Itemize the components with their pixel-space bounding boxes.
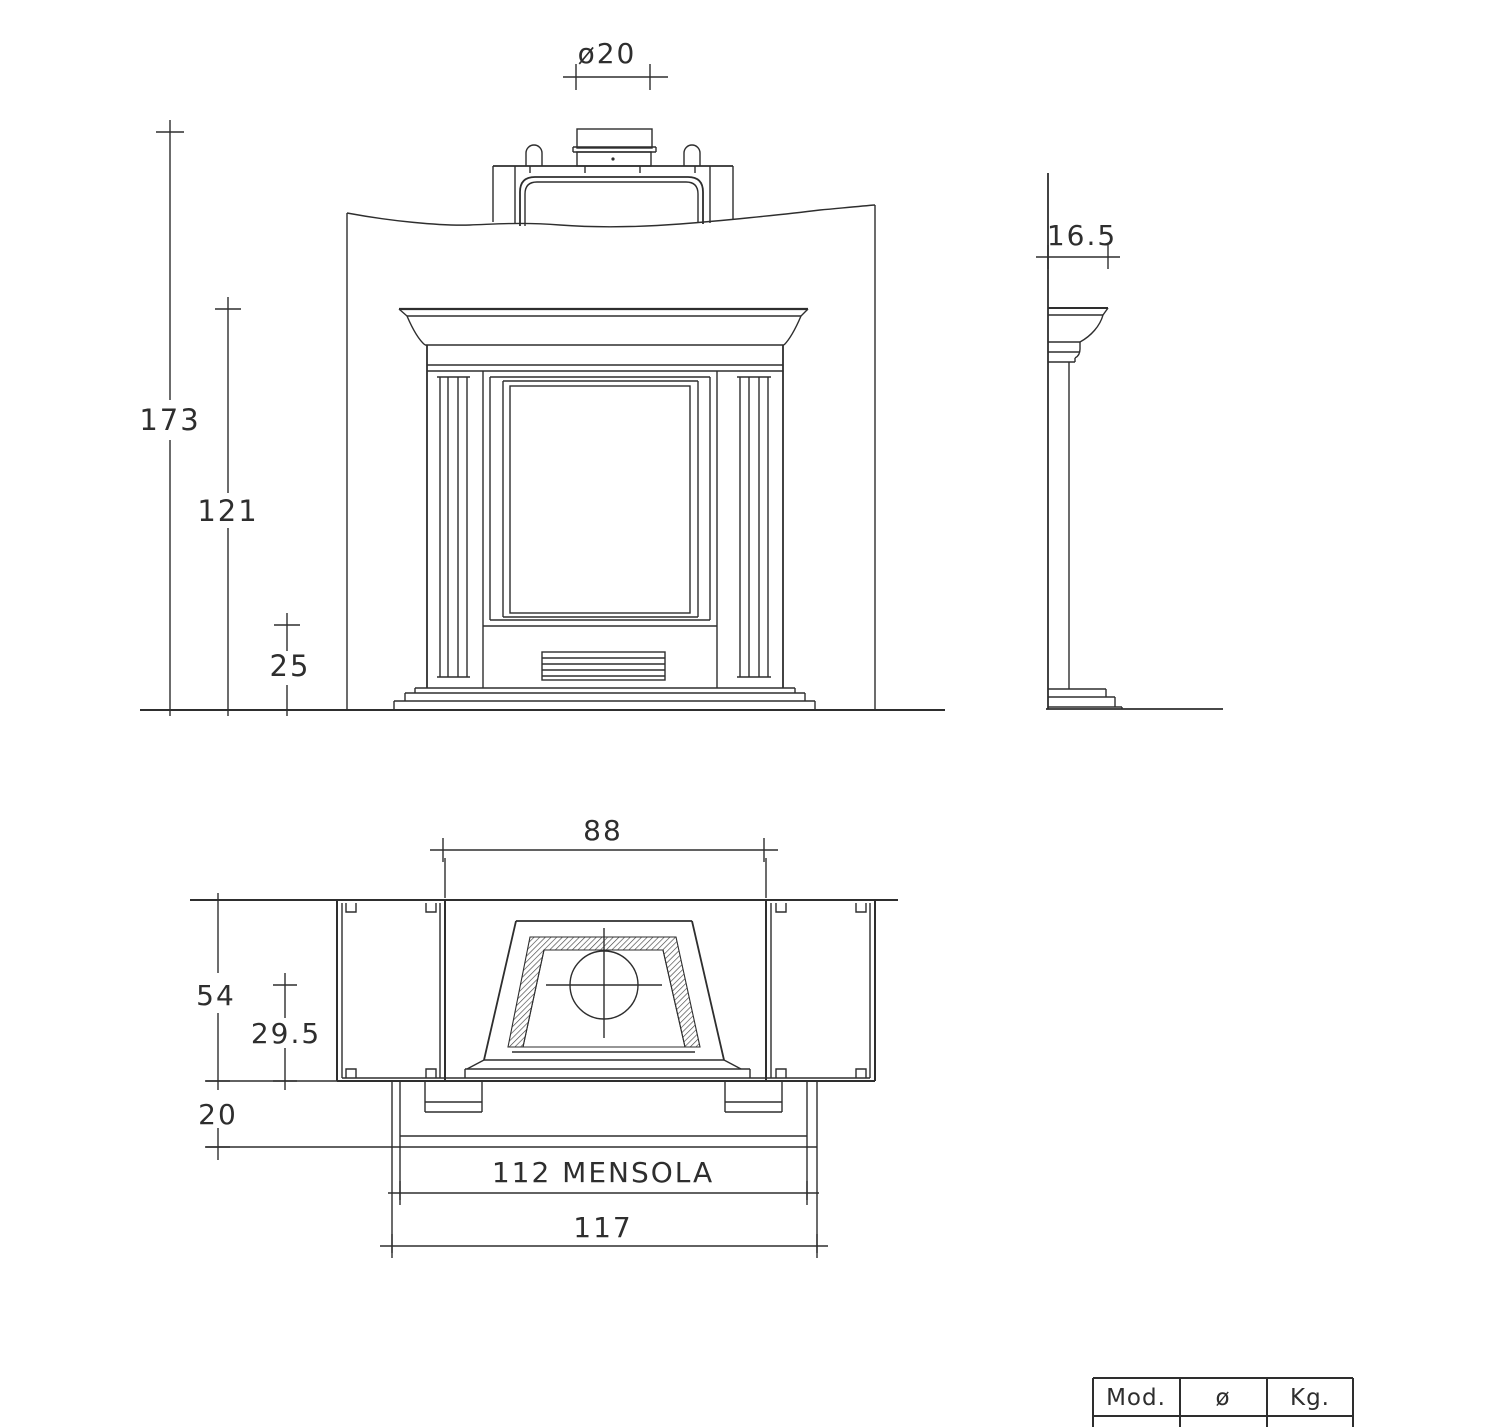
table-header-kg: Kg. (1290, 1385, 1330, 1411)
pilaster-left (427, 345, 483, 688)
dim-firebox-depth-label: 29.5 (251, 1017, 321, 1050)
plan-wall-left (337, 900, 445, 1081)
dim-side-depth-label: 16.5 (1047, 219, 1117, 252)
dim-wall-depth-label: 54 (196, 979, 236, 1012)
plan-front-bar (465, 1060, 750, 1078)
base-plinth (394, 688, 815, 710)
side-cornice-profile (1048, 308, 1108, 362)
handle-right-icon (684, 145, 700, 166)
dim-mantel-height-label: 121 (197, 494, 258, 528)
plan-mensola (392, 1081, 817, 1147)
pilaster-right (717, 345, 783, 688)
technical-drawing-canvas: ø20 173 121 25 (0, 0, 1500, 1427)
plan-foot-left (425, 1081, 482, 1112)
insert-casing (493, 166, 733, 224)
firebox-opening (483, 377, 717, 626)
dim-hearth-height-label: 25 (270, 649, 311, 683)
handle-left-icon (526, 145, 542, 166)
dim-flue-diameter-label: ø20 (578, 37, 637, 70)
dim-overall-width-label: 117 (573, 1211, 632, 1244)
dim-opening-width-label: 88 (583, 814, 623, 847)
mantel-cornice (399, 309, 808, 371)
side-view (1036, 173, 1223, 709)
table-header-diameter: ø (1215, 1385, 1230, 1411)
dim-shelf-width-label: 112 MENSOLA (492, 1156, 714, 1189)
front-view (140, 64, 945, 716)
plan-foot-right (725, 1081, 782, 1112)
dim-shelf-overhang-label: 20 (198, 1098, 238, 1131)
plan-wall-right (766, 900, 875, 1081)
drawing-sheet: ø20 173 121 25 (0, 0, 1500, 1427)
vent-grille (542, 652, 665, 680)
table-header-mod: Mod. (1106, 1385, 1166, 1411)
flue-collar (573, 129, 656, 166)
dim-total-height-label: 173 (139, 403, 200, 437)
dim-line-20 (205, 1128, 392, 1160)
insert-body-top (520, 177, 703, 226)
side-base-steps (1048, 689, 1122, 709)
dim-line-88 (430, 838, 778, 898)
